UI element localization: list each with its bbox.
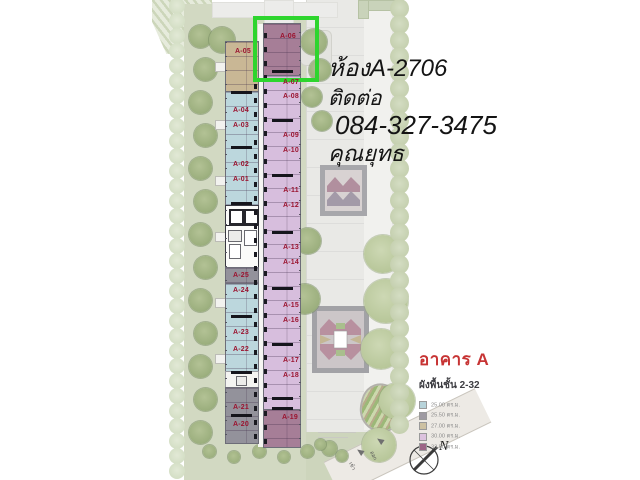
legend-swatch <box>419 422 427 430</box>
shrub <box>228 451 240 463</box>
unit-label-a-25: A-25 <box>230 272 252 279</box>
tree-icon <box>169 58 185 74</box>
tree-icon <box>189 91 212 114</box>
garden-emblem-icon <box>320 165 367 216</box>
tree-icon <box>194 58 217 81</box>
unit-label-a-05: A-05 <box>232 48 254 55</box>
unit-label-a-06: A-06 <box>277 33 299 40</box>
tree-icon <box>169 463 185 479</box>
legend-item: 25.50 ตร.ม. <box>419 411 539 422</box>
unit-label-a-13: A-13 <box>280 244 302 251</box>
legend-label: 33.50 ตร.ม. <box>431 443 460 452</box>
tree-icon <box>189 157 212 180</box>
unit-label-a-23: A-23 <box>230 329 252 336</box>
tree-icon <box>169 43 185 59</box>
legend-item: 25.00 ตร.ม. <box>419 400 539 411</box>
tree-icon <box>189 289 212 312</box>
elevator-icon <box>229 209 244 225</box>
party-wall <box>231 91 252 94</box>
unit-label-a-17: A-17 <box>280 357 302 364</box>
tree-icon <box>169 118 185 134</box>
unit-label-a-09: A-09 <box>280 132 302 139</box>
legend-label: 27.00 ตร.ม. <box>431 422 460 431</box>
unit-label-a-20: A-20 <box>230 421 252 428</box>
garden-emblem-icon <box>312 306 369 373</box>
legend: อาคาร A ผังพื้นชั้น 2-32 25.00 ตร.ม.25.5… <box>419 346 539 453</box>
legend-item: 30.00 ตร.ม. <box>419 432 539 443</box>
party-wall <box>231 414 252 417</box>
legend-swatch <box>419 412 427 420</box>
tree-icon <box>169 178 185 194</box>
party-wall <box>231 371 252 374</box>
party-wall <box>272 231 293 234</box>
tree-icon <box>169 193 185 209</box>
tree-icon <box>169 403 185 419</box>
tree-icon <box>169 148 185 164</box>
tree-icon <box>169 433 185 449</box>
unit-label-a-24: A-24 <box>230 287 252 294</box>
legend-item: 27.00 ตร.ม. <box>419 421 539 432</box>
tree-icon <box>169 223 185 239</box>
contact-overlay: ห้องA-2706 ติดต่อ 084-327-3475 คุณยุทธ <box>328 56 497 166</box>
legend-swatch <box>419 433 427 441</box>
door-ticks <box>264 26 267 447</box>
shrub <box>336 450 348 462</box>
unit-label-a-11: A-11 <box>280 187 302 194</box>
service-room <box>229 244 241 259</box>
tree-icon <box>169 28 185 44</box>
tree-icon <box>194 124 217 147</box>
tree-icon <box>189 223 212 246</box>
tree-icon <box>169 418 185 434</box>
tree-icon <box>169 13 185 29</box>
service-room <box>228 230 242 242</box>
tree-icon <box>169 208 185 224</box>
tree-icon <box>169 448 185 464</box>
plaza-step-line <box>318 432 356 433</box>
tree-icon <box>169 328 185 344</box>
tree-icon <box>194 322 217 345</box>
room-number-text: ห้องA-2706 <box>328 56 497 82</box>
shrub <box>315 439 326 450</box>
service-room <box>236 376 247 386</box>
unit-label-a-22: A-22 <box>230 346 252 353</box>
unit-label-a-21: A-21 <box>230 404 252 411</box>
balcony-ticks <box>299 26 301 447</box>
legend-item: 33.50 ตร.ม. <box>419 442 539 453</box>
contact-name-text: คุณยุทธ <box>328 142 497 166</box>
legend-rows: 25.00 ตร.ม.25.50 ตร.ม.27.00 ตร.ม.30.00 ต… <box>419 400 539 453</box>
party-wall <box>272 397 293 400</box>
site-plan-stage: A-05A-04A-03A-02A-01A-25A-24A-23A-22A-21… <box>0 0 640 480</box>
tree-icon <box>169 268 185 284</box>
legend-swatch <box>419 401 427 409</box>
unit-label-a-15: A-15 <box>280 302 302 309</box>
unit-label-a-01: A-01 <box>230 176 252 183</box>
shrub <box>278 451 290 463</box>
tree-icon <box>169 358 185 374</box>
party-wall <box>231 315 252 318</box>
contact-text: ติดต่อ <box>328 87 497 110</box>
balcony-ticks <box>225 42 227 443</box>
tree-icon <box>362 428 396 462</box>
tree-icon <box>169 88 185 104</box>
party-wall <box>272 174 293 177</box>
tree-icon <box>169 238 185 254</box>
party-wall <box>231 146 252 149</box>
unit-label-a-12: A-12 <box>280 202 302 209</box>
shrub <box>301 445 314 458</box>
legend-label: 30.00 ตร.ม. <box>431 432 460 441</box>
door-ticks <box>254 42 257 443</box>
unit-label-a-08: A-08 <box>280 93 302 100</box>
tree-icon <box>189 421 212 444</box>
tree-icon <box>169 253 185 269</box>
tree-icon <box>169 73 185 89</box>
tree-icon <box>189 355 212 378</box>
tree-icon <box>169 133 185 149</box>
tree-icon <box>169 103 185 119</box>
plaza-step-line <box>318 437 348 438</box>
tree-icon <box>302 87 322 107</box>
tree-icon <box>169 298 185 314</box>
party-wall <box>272 407 293 410</box>
unit-label-a-04: A-04 <box>230 107 252 114</box>
tree-icon <box>194 388 217 411</box>
party-wall <box>272 119 293 122</box>
party-wall <box>231 202 252 205</box>
unit-label-a-16: A-16 <box>280 317 302 324</box>
phone-number-text: 084-327-3475 <box>335 111 497 140</box>
tree-icon <box>169 313 185 329</box>
floors-subtitle: ผังพื้นชั้น 2-32 <box>419 378 539 393</box>
unit-label-a-14: A-14 <box>280 259 302 266</box>
unit-label-a-02: A-02 <box>230 161 252 168</box>
tree-icon <box>194 256 217 279</box>
tree-icon <box>169 163 185 179</box>
legend-swatch <box>419 443 427 451</box>
unit-label-a-19: A-19 <box>279 414 301 421</box>
tree-icon <box>169 283 185 299</box>
tree-icon <box>169 373 185 389</box>
unit-label-a-18: A-18 <box>280 372 302 379</box>
shrub <box>203 445 216 458</box>
highlighted-unit-box <box>253 16 319 82</box>
legend-label: 25.50 ตร.ม. <box>431 411 460 420</box>
legend-label: 25.00 ตร.ม. <box>431 401 460 410</box>
tree-icon <box>169 343 185 359</box>
tree-icon <box>189 25 212 48</box>
building-title: อาคาร A <box>419 346 539 373</box>
unit-label-a-07: A-07 <box>280 79 302 86</box>
party-wall <box>272 343 293 346</box>
tree-icon <box>390 415 409 434</box>
party-wall <box>272 287 293 290</box>
tree-icon <box>194 190 217 213</box>
tree-icon <box>169 388 185 404</box>
unit-label-a-10: A-10 <box>280 147 302 154</box>
unit-label-a-03: A-03 <box>230 122 252 129</box>
roof-edge <box>358 0 369 19</box>
